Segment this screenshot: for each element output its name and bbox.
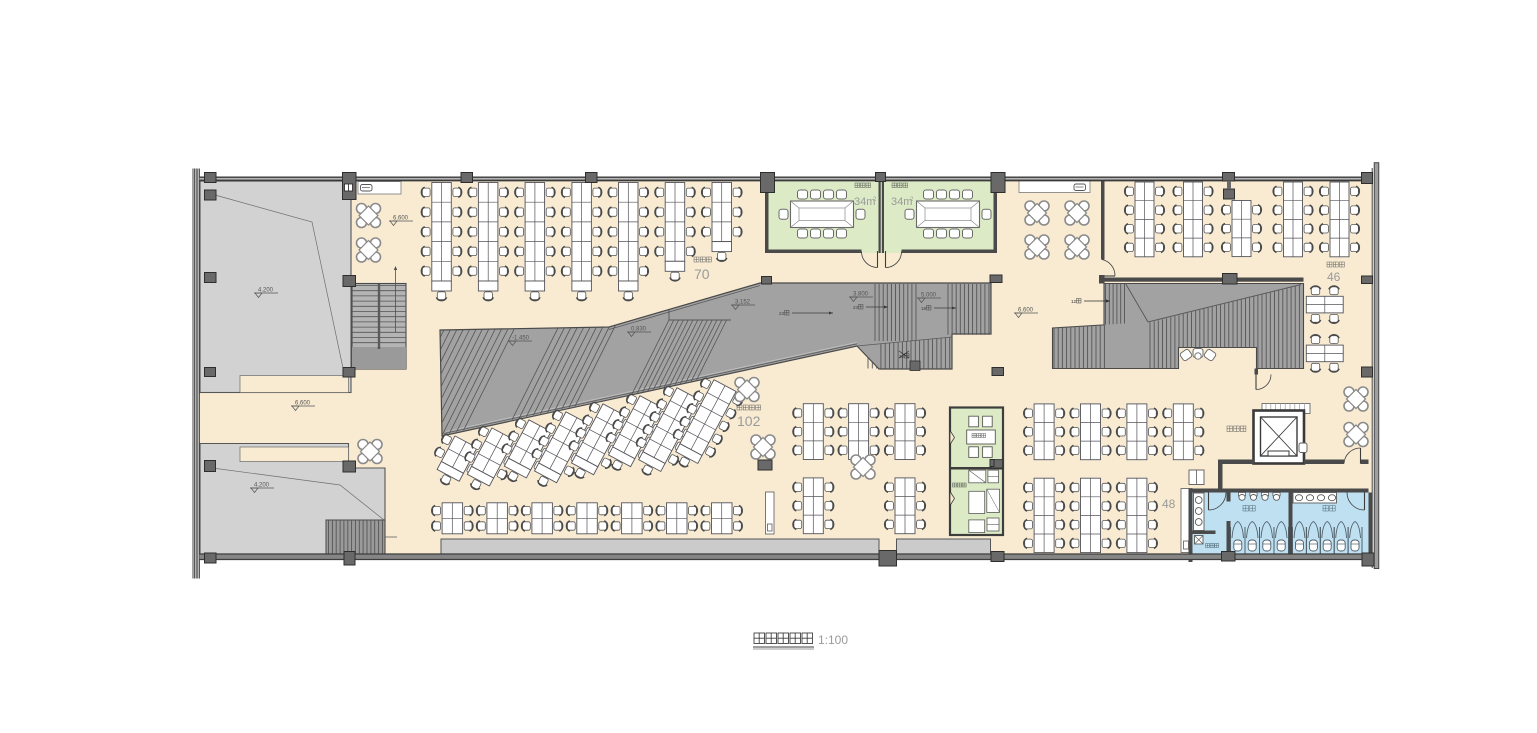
- svg-text:6.600: 6.600: [295, 401, 311, 407]
- svg-text:6.600: 6.600: [1018, 308, 1034, 314]
- svg-text:3.800: 3.800: [853, 292, 869, 298]
- svg-text:4.200: 4.200: [254, 483, 270, 489]
- svg-text:48: 48: [1162, 497, 1176, 511]
- svg-text:-1.450: -1.450: [512, 336, 530, 342]
- svg-text:12: 12: [1071, 299, 1077, 304]
- svg-text:23: 23: [853, 305, 859, 310]
- svg-text:70: 70: [694, 266, 710, 282]
- svg-text:3.152: 3.152: [735, 300, 751, 306]
- svg-text:102: 102: [737, 413, 761, 429]
- svg-text:18: 18: [921, 306, 927, 311]
- svg-text:4.200: 4.200: [258, 288, 274, 294]
- svg-text:46: 46: [1327, 270, 1341, 284]
- svg-text:5.000: 5.000: [921, 293, 937, 299]
- svg-text:0.830: 0.830: [631, 327, 647, 333]
- svg-text:1:100: 1:100: [818, 633, 848, 647]
- svg-text:6.600: 6.600: [393, 216, 409, 222]
- svg-text:23: 23: [779, 311, 785, 316]
